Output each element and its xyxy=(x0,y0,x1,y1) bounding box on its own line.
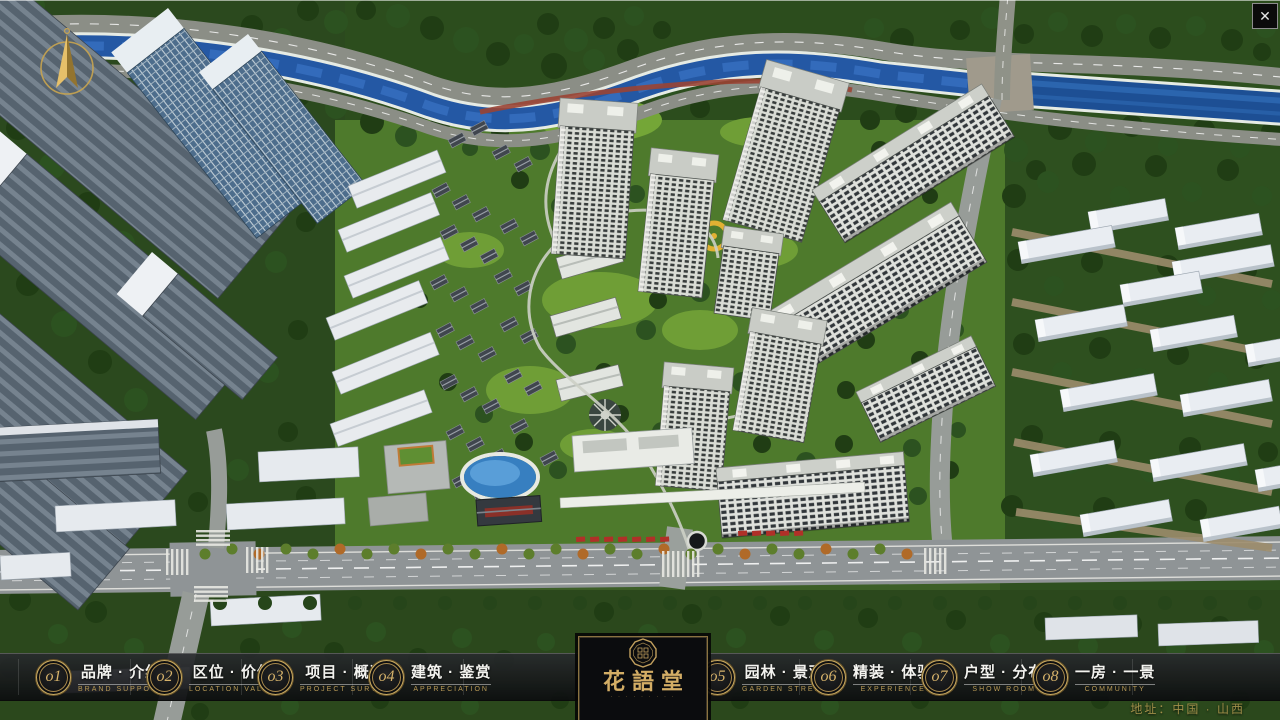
address-text: 地址：中国 · 山西 xyxy=(1130,700,1245,717)
aerial-masterplan-render xyxy=(0,0,1280,720)
project-name: 花語堂 xyxy=(596,670,690,694)
menu-separator xyxy=(352,659,353,695)
menu-item-landscape[interactable]: o5 园林 · 景观GARDEN STREET xyxy=(700,654,828,700)
close-icon: ✕ xyxy=(1259,8,1271,25)
seal-icon xyxy=(628,637,658,669)
menu-number-badge: o3 xyxy=(258,660,293,695)
logo-tagline: · · · · · · · · · xyxy=(610,694,675,701)
menu-number-badge: o4 xyxy=(369,660,404,695)
project-logo[interactable]: 花語堂 · · · · · · · · · xyxy=(578,636,708,720)
menu-number-badge: o8 xyxy=(1033,660,1068,695)
menu-label-zh: 一房 · 一景 xyxy=(1075,661,1155,682)
menu-item-interior-experience[interactable]: o6 精装 · 体验EXPERIENCE xyxy=(811,654,933,700)
menu-number-badge: o7 xyxy=(922,660,957,695)
menu-separator xyxy=(910,659,911,695)
menu-number-badge: o6 xyxy=(811,660,846,695)
menu-separator xyxy=(1132,659,1133,695)
menu-separator xyxy=(1021,659,1022,695)
compass-icon xyxy=(30,24,104,104)
menu-label-en: EXPERIENCE xyxy=(861,686,926,693)
app-window: ✕ o1 品牌 · 介绍BRAND SUPPORT o2 区位 · 价值LOCA… xyxy=(0,0,1280,720)
menu-separator xyxy=(241,659,242,695)
menu-item-room-view[interactable]: o8 一房 · 一景COMMUNITY xyxy=(1033,654,1155,700)
close-button[interactable]: ✕ xyxy=(1252,3,1278,29)
menu-item-architecture[interactable]: o4 建筑 · 鉴赏APPRECIATION xyxy=(369,654,491,700)
menu-underline xyxy=(1075,684,1155,685)
menu-separator xyxy=(130,659,131,695)
menu-label-en: SHOW ROOM xyxy=(972,686,1036,693)
menu-separator xyxy=(18,659,19,695)
menu-separator xyxy=(463,659,464,695)
menu-label-zh: 建筑 · 鉴赏 xyxy=(411,661,491,682)
menu-item-brand-intro[interactable]: o1 品牌 · 介绍BRAND SUPPORT xyxy=(36,654,164,700)
menu-item-floorplans[interactable]: o7 户型 · 分布SHOW ROOM xyxy=(922,654,1044,700)
menu-number-badge: o1 xyxy=(36,660,71,695)
menu-number-badge: o2 xyxy=(147,660,182,695)
menu-separator xyxy=(799,659,800,695)
menu-underline xyxy=(411,684,491,685)
menu-label-en: APPRECIATION xyxy=(413,686,489,693)
menu-label-en: COMMUNITY xyxy=(1085,686,1146,693)
window-top-border xyxy=(0,0,1280,1)
